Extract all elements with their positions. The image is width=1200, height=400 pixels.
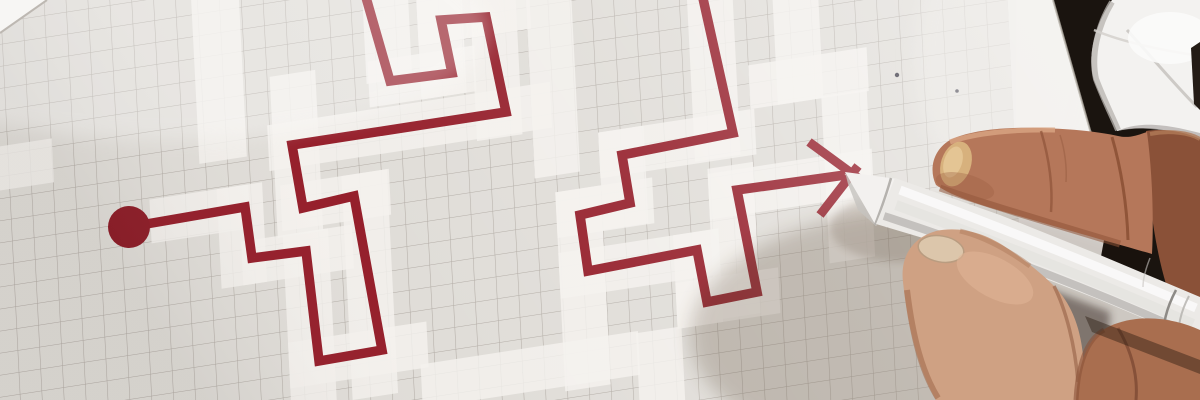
photo-canvas [0, 0, 1200, 400]
ink-speck-2 [955, 89, 959, 93]
ink-speck-1 [895, 73, 899, 77]
maze-photo [0, 0, 1200, 400]
